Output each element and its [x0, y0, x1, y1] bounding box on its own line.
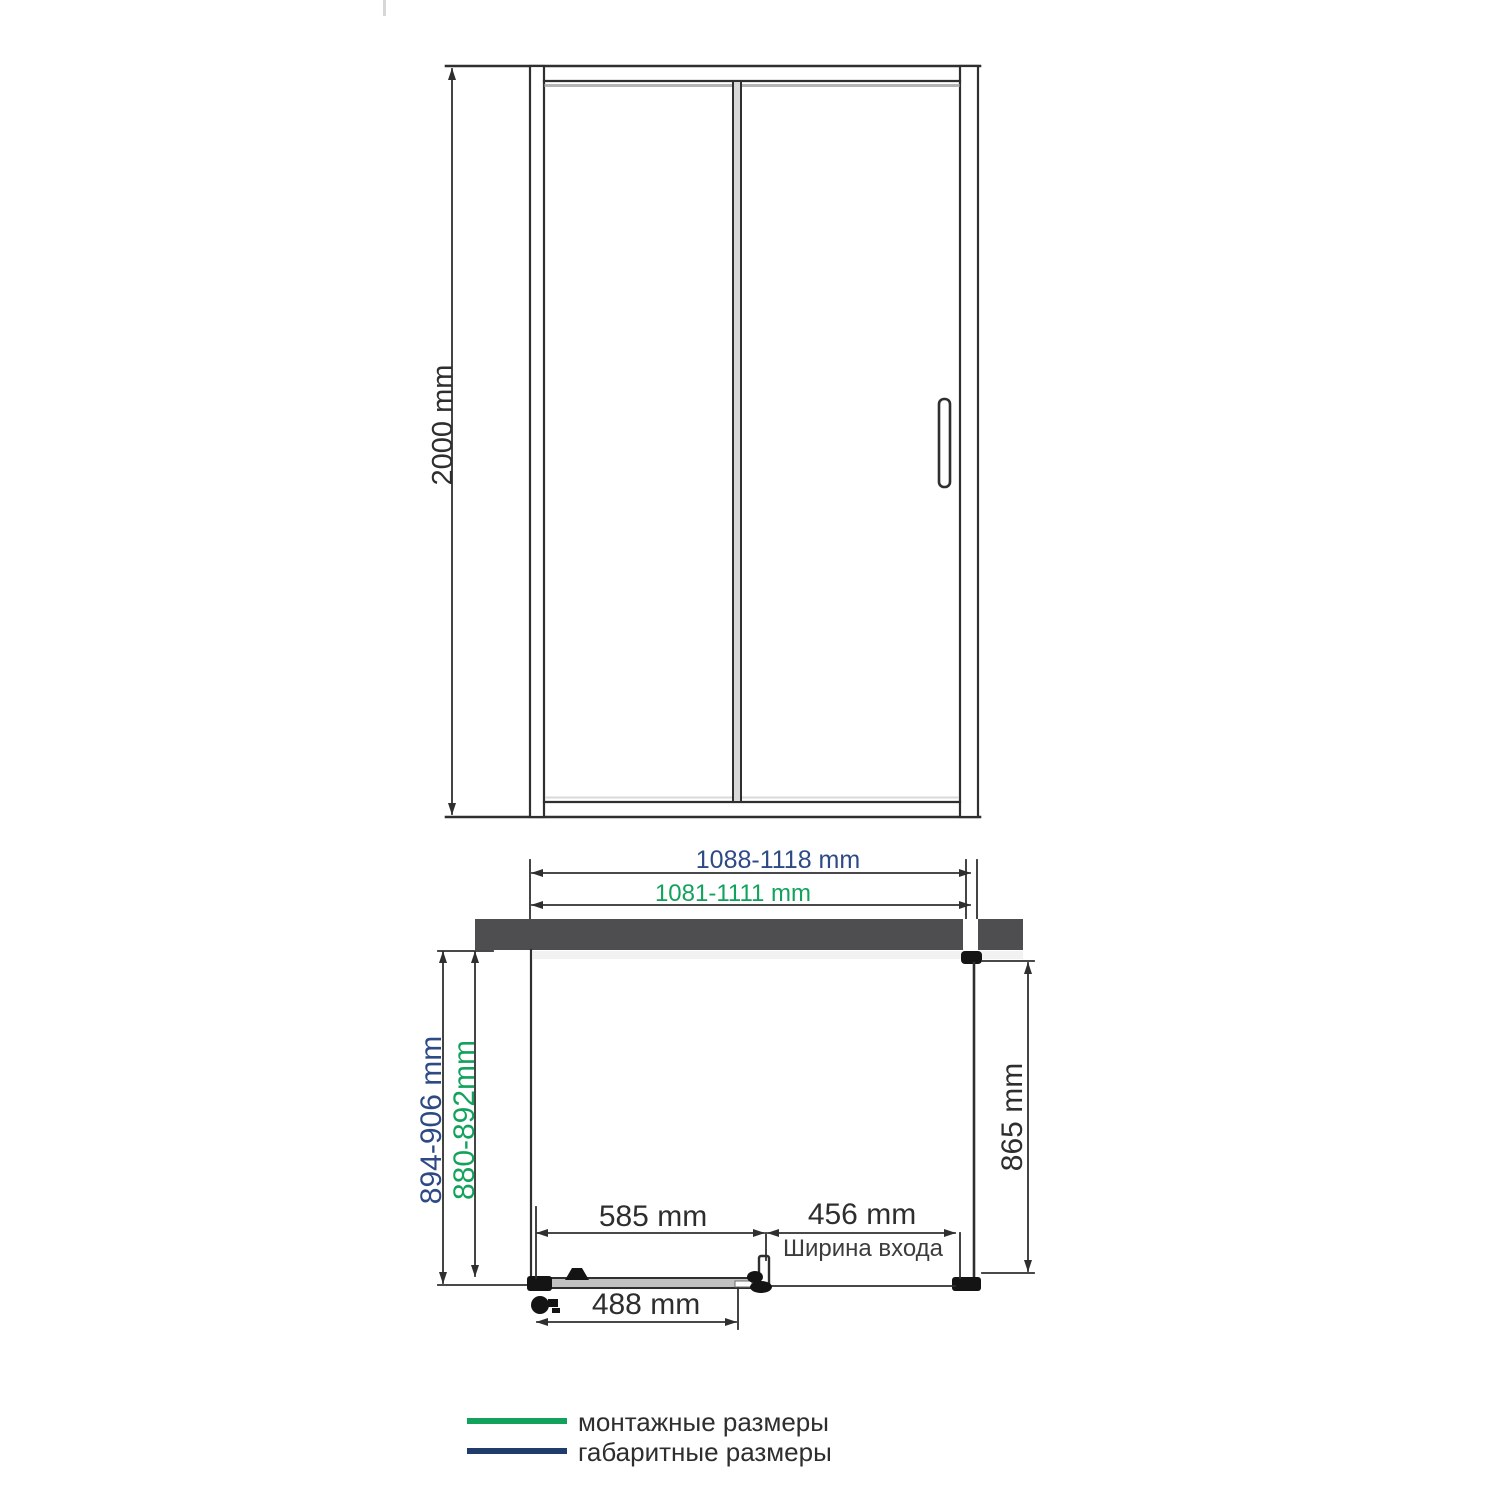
right-wall-profile: [960, 66, 978, 817]
drawing-svg: 2000 mm 1088-1118 mm 1081-1111 mm 894-90…: [0, 0, 1500, 1500]
mounting-width-text: 1081-1111 mm: [655, 880, 811, 907]
entry-width-label: Ширина входа: [783, 1235, 944, 1262]
door-track-left-cap: [527, 1276, 552, 1291]
wall-bracket-arm: [548, 1299, 558, 1307]
mounting-depth-text: 880-892mm: [448, 1040, 481, 1200]
front-elevation: 2000 mm: [427, 66, 980, 817]
shower-door-dimension-drawing: 2000 mm 1088-1118 mm 1081-1111 mm 894-90…: [0, 0, 1500, 1500]
plan-view: 1088-1118 mm 1081-1111 mm 894-906 mm 880…: [415, 846, 1034, 1329]
artifact-mark: [383, 0, 386, 16]
wall-bracket-foot: [552, 1308, 560, 1313]
wall-bracket: [531, 1296, 549, 1314]
side-glass-bottom-cap: [952, 1277, 981, 1291]
overall-width-text: 1088-1118 mm: [696, 846, 860, 874]
height-dim-text: 2000 mm: [427, 365, 459, 486]
wall-bar-shadow: [533, 951, 1023, 959]
slider-glass-text: 488 mm: [592, 1288, 700, 1321]
legend-mounting-label: монтажные размеры: [578, 1407, 829, 1437]
track-roller-slot: [735, 1281, 752, 1287]
door-roller: [565, 1268, 589, 1280]
glass-divider: [733, 81, 741, 802]
left-wall-profile: [530, 66, 544, 817]
overall-depth-text: 894-906 mm: [415, 1036, 448, 1204]
legend-overall-label: габаритные размеры: [578, 1437, 832, 1467]
fixed-glass-text: 585 mm: [599, 1200, 707, 1233]
legend: монтажные размеры габаритные размеры: [467, 1407, 832, 1467]
door-handle: [939, 399, 950, 487]
side-glass-text: 865 mm: [996, 1063, 1029, 1171]
door-roller-front: [750, 1281, 772, 1293]
wall-bar-profile-gap: [963, 919, 978, 951]
side-glass-top-cap: [961, 951, 982, 964]
wall-bar: [475, 919, 1023, 950]
entry-width-text: 456 mm: [808, 1198, 916, 1231]
